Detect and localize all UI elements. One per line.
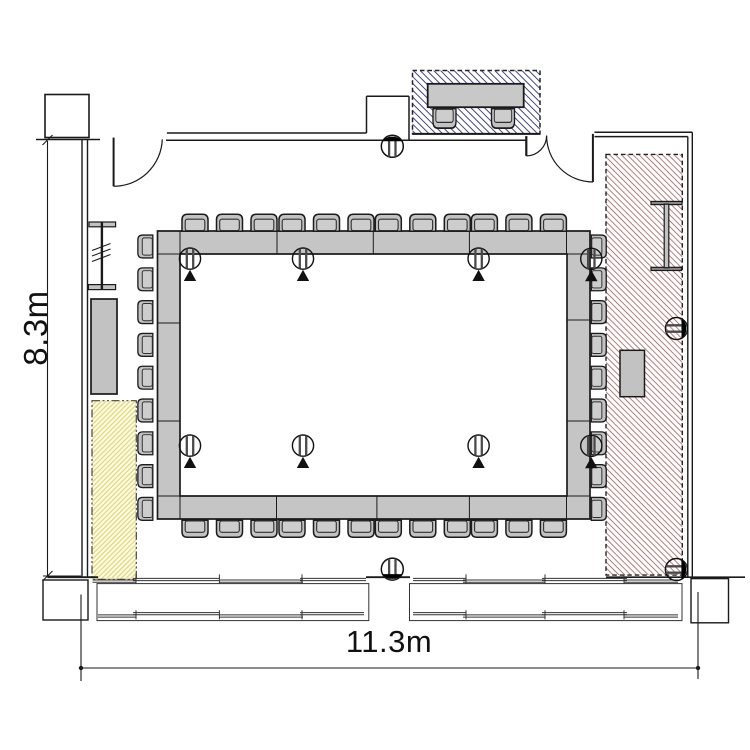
svg-text:11.3m: 11.3m bbox=[346, 624, 432, 659]
svg-text:8.3m: 8.3m bbox=[17, 290, 54, 365]
